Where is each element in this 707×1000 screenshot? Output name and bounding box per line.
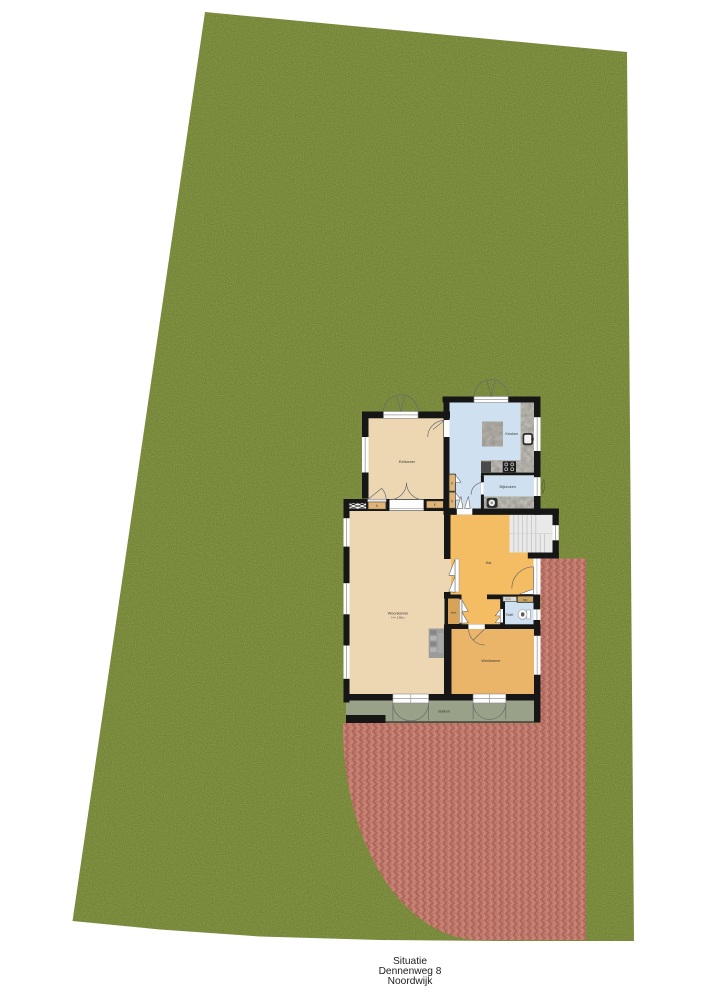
svg-text:Werkkamer: Werkkamer xyxy=(481,659,501,663)
svg-text:MK: MK xyxy=(523,598,528,602)
svg-text:Toilet: Toilet xyxy=(506,613,514,617)
svg-text:Keuken: Keuken xyxy=(505,432,518,436)
svg-text:Bijkeuken: Bijkeuken xyxy=(499,485,515,489)
svg-text:Balkon: Balkon xyxy=(438,710,450,714)
svg-text:Eetkamer: Eetkamer xyxy=(399,460,416,464)
svg-text:H = 2.60m: H = 2.60m xyxy=(392,616,406,620)
svg-text:Kast: Kast xyxy=(451,611,457,615)
svg-text:Noordwijk: Noordwijk xyxy=(388,976,434,987)
svg-text:Hal: Hal xyxy=(486,561,492,565)
